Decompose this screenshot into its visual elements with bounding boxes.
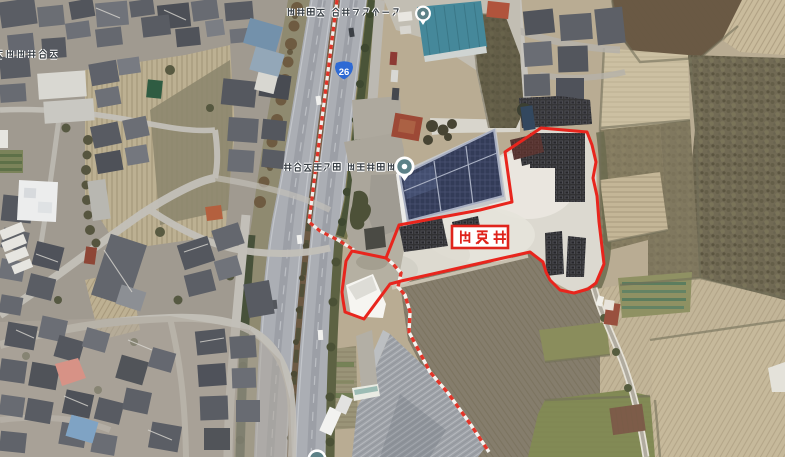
- svg-text:26: 26: [339, 67, 350, 78]
